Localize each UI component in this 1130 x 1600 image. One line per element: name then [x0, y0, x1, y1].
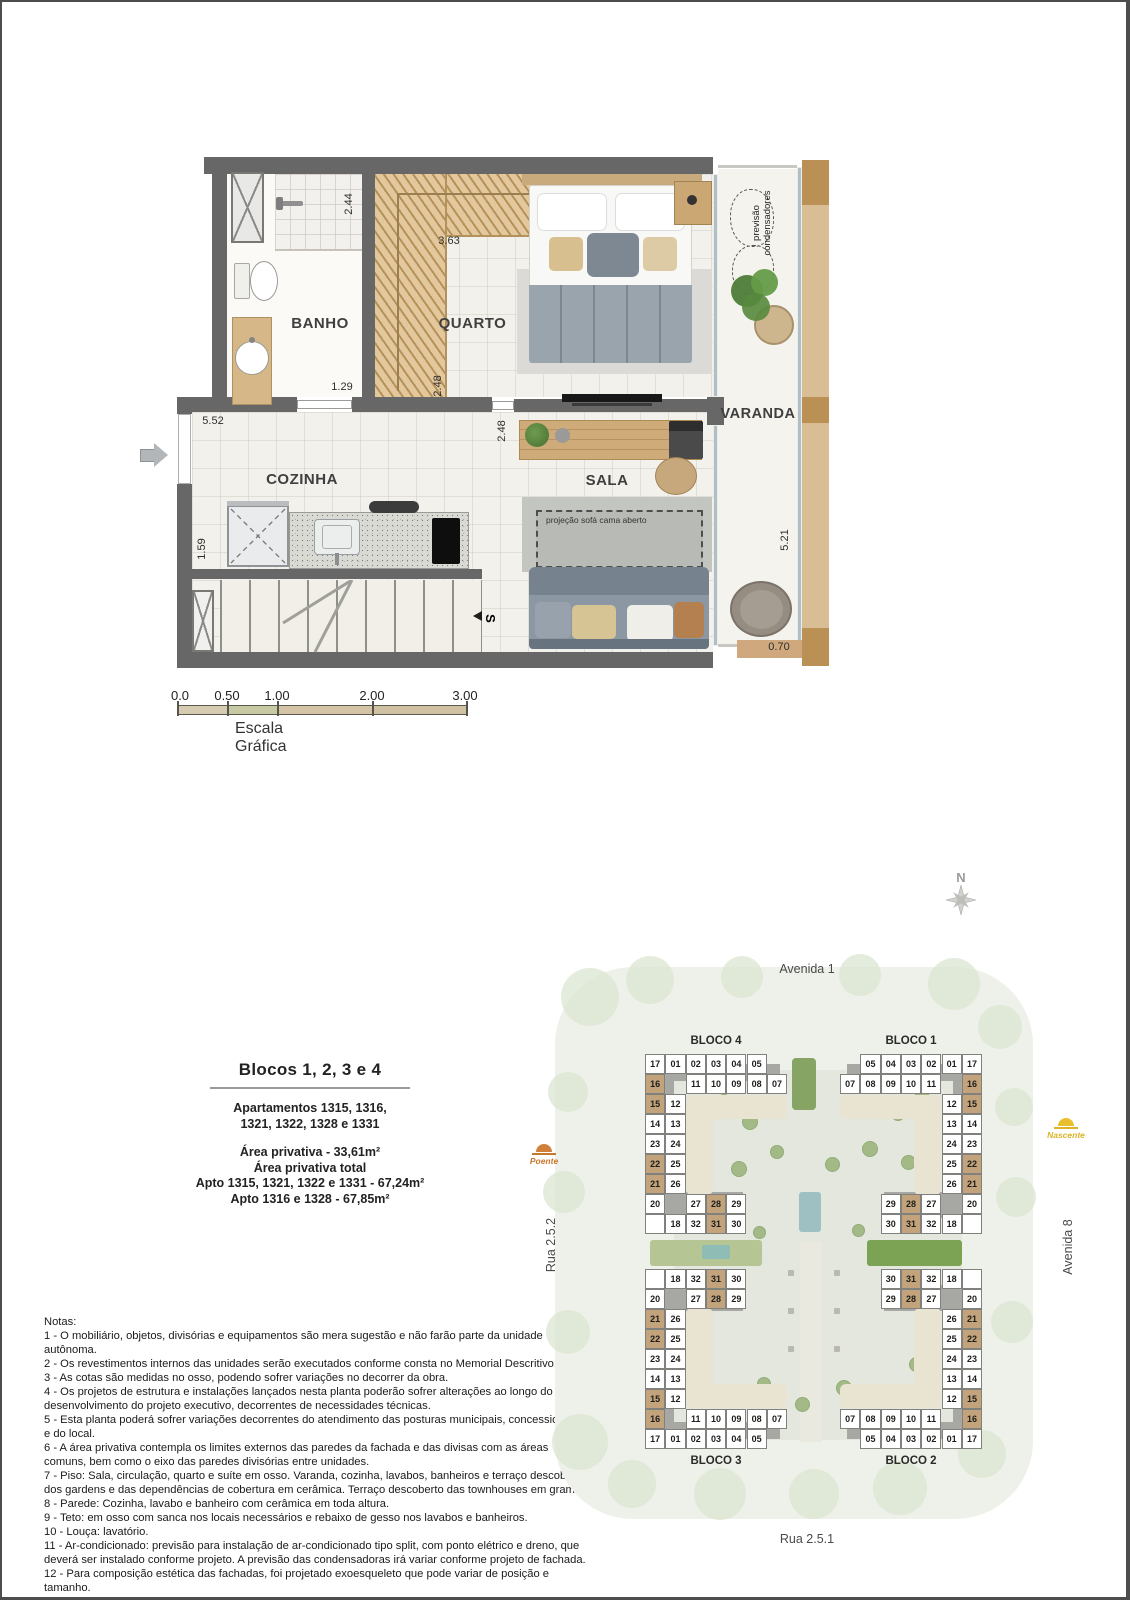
unit-cell: 05 — [747, 1429, 767, 1449]
info-title: Blocos 1, 2, 3 e 4 — [160, 1060, 460, 1080]
tree-icon — [626, 956, 674, 1004]
unit-cell: 29 — [881, 1289, 901, 1309]
sofa-backrest — [529, 567, 709, 597]
info-line: 1321, 1322, 1328 e 1331 — [160, 1117, 460, 1133]
desk-plant-icon — [525, 423, 549, 447]
unit-cell: 11 — [921, 1409, 941, 1429]
table-icon — [788, 1346, 794, 1352]
scale-tick-mark — [466, 701, 468, 716]
unit-cell: 25 — [665, 1154, 685, 1174]
label-quarto: QUARTO — [425, 315, 520, 332]
unit-cell: 28 — [706, 1194, 726, 1214]
scale-tick-label: 0.0 — [171, 688, 189, 703]
scale-tick-mark — [372, 701, 374, 716]
sink-basin-icon — [235, 341, 269, 375]
floor-plan: projeção sofá cama aberto previsão conde… — [157, 157, 829, 669]
scale-seg-2 — [227, 705, 277, 715]
unit-cell: 22 — [962, 1154, 982, 1174]
bloco-label: BLOCO 4 — [645, 1035, 787, 1047]
bed-cushion-tan-left — [549, 237, 583, 271]
unit-cell: 30 — [881, 1269, 901, 1289]
kitchen-faucet-icon — [335, 553, 339, 565]
unit-cell: 08 — [860, 1409, 880, 1429]
stairs-direction: S — [473, 608, 503, 624]
tree-icon — [546, 1310, 590, 1354]
unit-cell: 15 — [962, 1389, 982, 1409]
shower-valve-icon — [276, 197, 283, 210]
deck-strip-5 — [802, 628, 829, 666]
tree-icon — [548, 1072, 588, 1112]
unit-cell: 26 — [665, 1174, 685, 1194]
wall-left-lower-b — [177, 484, 192, 668]
unit-cell: 18 — [942, 1269, 962, 1289]
tree-icon — [995, 1088, 1033, 1126]
tree-icon — [552, 1414, 608, 1470]
street-avenida-1: Avenida 1 — [762, 962, 852, 976]
unit-cell: 15 — [962, 1094, 982, 1114]
unit-cell: 20 — [962, 1289, 982, 1309]
info-line: Apto 1316 e 1328 - 67,85m² — [160, 1192, 460, 1208]
unit-cell: 31 — [901, 1214, 921, 1234]
scale-caption: Escala Gráfica — [235, 720, 287, 756]
unit-cell: 21 — [645, 1174, 665, 1194]
unit-cell: 10 — [706, 1409, 726, 1429]
unit-cell: 01 — [942, 1054, 962, 1074]
deck-strip-2 — [802, 205, 829, 397]
unit-cell: 02 — [686, 1429, 706, 1449]
stairs — [220, 580, 482, 652]
bloco-bloco-3: 1701020304051611100908071512141323242225… — [645, 1269, 787, 1449]
dim-1-59: 1.59 — [196, 534, 208, 564]
unit-cell: 26 — [942, 1309, 962, 1329]
wall-top — [204, 157, 713, 174]
unit-cell: 17 — [645, 1429, 665, 1449]
green-roof-east — [867, 1240, 962, 1266]
sofa-pillow-gray — [535, 602, 571, 638]
unit-cell: 25 — [942, 1154, 962, 1174]
unit-cell: 13 — [665, 1114, 685, 1134]
tree-icon — [789, 1469, 839, 1519]
bed-blanket — [529, 285, 692, 363]
info-line: Apto 1315, 1321, 1322 e 1331 - 67,24m² — [160, 1176, 460, 1192]
unit-cell: 12 — [665, 1389, 685, 1409]
unit-cell: 10 — [901, 1409, 921, 1429]
tree-icon — [694, 1468, 746, 1520]
unit-cell: 13 — [665, 1369, 685, 1389]
note-item: 4 - Os projetos de estrutura e instalaçõ… — [44, 1385, 593, 1413]
sun-poente: Poente — [518, 1144, 570, 1166]
unit-cell: 29 — [881, 1194, 901, 1214]
laptop-icon — [669, 421, 703, 459]
note-item: 2 - Os revestimentos internos das unidad… — [44, 1357, 593, 1371]
unit-cell — [645, 1269, 665, 1289]
unit-cell: 01 — [942, 1429, 962, 1449]
garden-strip — [686, 1095, 713, 1195]
unit-cell: 28 — [901, 1289, 921, 1309]
scale-seg-4 — [372, 705, 467, 715]
unit-cell: 23 — [645, 1134, 665, 1154]
unit-cell: 20 — [645, 1289, 665, 1309]
unit-cell: 04 — [726, 1429, 746, 1449]
unit-cell: 16 — [645, 1409, 665, 1429]
kitchen-appliance-icon — [369, 501, 419, 513]
bed-pillow-left — [537, 193, 607, 231]
unit-cell: 32 — [921, 1214, 941, 1234]
unit-cell: 04 — [881, 1429, 901, 1449]
desk-ornament-icon — [555, 428, 570, 443]
unit-cell: 03 — [706, 1429, 726, 1449]
tree-icon — [928, 958, 980, 1010]
dim-0-70: 0.70 — [762, 641, 796, 653]
unit-cell: 22 — [645, 1329, 665, 1349]
cooktop-icon — [432, 518, 460, 564]
unit-cell: 11 — [686, 1409, 706, 1429]
wall-left-lower-a — [177, 397, 192, 414]
bloco-label: BLOCO 2 — [840, 1455, 982, 1467]
unit-cell — [645, 1214, 665, 1234]
scale-seg-1 — [177, 705, 227, 715]
shaft-box-bottom — [192, 590, 214, 652]
label-varanda: VARANDA — [712, 406, 804, 422]
unit-cell: 08 — [747, 1409, 767, 1429]
sunset-icon — [536, 1144, 552, 1152]
unit-cell: 16 — [962, 1409, 982, 1429]
unit-cell: 32 — [686, 1214, 706, 1234]
desk-chair — [655, 457, 697, 495]
wall-bottom — [177, 652, 713, 668]
sun-nascente: Nascente — [1038, 1118, 1094, 1140]
unit-cell: 24 — [665, 1134, 685, 1154]
unit-cell: 17 — [962, 1429, 982, 1449]
unit-cell: 28 — [706, 1289, 726, 1309]
door-quarto — [492, 401, 514, 410]
unit-cell: 07 — [840, 1409, 860, 1429]
unit-cell: 18 — [942, 1214, 962, 1234]
unit-cell: 17 — [962, 1054, 982, 1074]
fridge — [227, 505, 289, 567]
varanda-chair-cushion — [740, 590, 783, 629]
info-lines: Apartamentos 1315, 1316,1321, 1322, 1328… — [160, 1101, 460, 1207]
deck-strip-4 — [802, 423, 829, 628]
unit-cell: 14 — [962, 1114, 982, 1134]
unit-cell: 30 — [726, 1269, 746, 1289]
note-item: 12 - Para composição estética das fachad… — [44, 1567, 593, 1595]
unit-cell: 14 — [962, 1369, 982, 1389]
tree-icon — [795, 1397, 810, 1412]
unit-cell: 07 — [840, 1074, 860, 1094]
stairs-letter: S — [483, 614, 498, 623]
kitchen-sink-basin — [322, 525, 352, 549]
poente-label: Poente — [518, 1156, 570, 1166]
unit-cell: 24 — [942, 1349, 962, 1369]
unit-cell: 09 — [881, 1074, 901, 1094]
toilet-tank-icon — [234, 263, 250, 299]
note-item: 13 - Será entregue previsão para instala… — [44, 1595, 593, 1600]
label-banho: BANHO — [275, 315, 365, 332]
unit-cell: 24 — [942, 1134, 962, 1154]
tree-icon — [721, 956, 763, 998]
tree-icon — [978, 1005, 1022, 1049]
closet-rail-v — [397, 193, 399, 391]
unit-cell: 31 — [901, 1269, 921, 1289]
unit-cell: 15 — [645, 1389, 665, 1409]
unit-cell: 15 — [645, 1094, 665, 1114]
unit-cell: 01 — [665, 1054, 685, 1074]
courtyard-pool — [799, 1192, 821, 1232]
unit-cell: 02 — [921, 1054, 941, 1074]
unit-cell: 18 — [665, 1214, 685, 1234]
unit-cell: 32 — [921, 1269, 941, 1289]
unit-cell: 30 — [726, 1214, 746, 1234]
shaft-box-top — [231, 172, 264, 243]
notes-block: Notas: 1 - O mobiliário, objetos, divisó… — [44, 1315, 593, 1600]
unit-cell: 08 — [860, 1074, 880, 1094]
note-item: 3 - As cotas são medidas no osso, podend… — [44, 1371, 593, 1385]
compass-n-label: N — [938, 870, 984, 885]
unit-cell: 30 — [881, 1214, 901, 1234]
page: projeção sofá cama aberto previsão conde… — [0, 0, 1130, 1600]
unit-cell: 03 — [706, 1054, 726, 1074]
sofa-bed-projection: projeção sofá cama aberto — [536, 510, 703, 568]
dim-2-48-a: 2.48 — [432, 371, 444, 401]
unit-cell: 24 — [665, 1349, 685, 1369]
unit-cell: 03 — [901, 1429, 921, 1449]
unit-cell: 29 — [726, 1289, 746, 1309]
note-item: 6 - A área privativa contempla os limite… — [44, 1441, 593, 1469]
door-banho — [297, 400, 352, 409]
bed-cushion-gray — [587, 233, 639, 277]
unit-cell: 14 — [645, 1369, 665, 1389]
sunset-horizon — [532, 1153, 556, 1155]
tree-icon — [873, 1461, 927, 1515]
compass-rose-icon — [946, 885, 976, 915]
unit-cell: 10 — [706, 1074, 726, 1094]
sofa-pillow-white — [627, 605, 673, 641]
dim-2-48-b: 2.48 — [496, 416, 508, 446]
unit-cell: 31 — [706, 1214, 726, 1234]
unit-cell — [962, 1214, 982, 1234]
wall-left-upper — [212, 157, 227, 397]
unit-cell: 12 — [942, 1094, 962, 1114]
deck-strip-3 — [802, 397, 829, 423]
unit-cell: 31 — [706, 1269, 726, 1289]
note-item: 7 - Piso: Sala, circulação, quarto e suí… — [44, 1469, 593, 1497]
unit-cell: 28 — [901, 1194, 921, 1214]
sofa-pillow-tan — [572, 605, 616, 639]
info-line: Área privativa - 33,61m² — [160, 1145, 460, 1161]
unit-cell: 21 — [962, 1174, 982, 1194]
closet-side — [375, 174, 447, 397]
deck-strip-1 — [802, 160, 829, 205]
plant-leaf-2 — [751, 269, 778, 296]
unit-cell: 21 — [645, 1309, 665, 1329]
tree-icon — [561, 968, 619, 1026]
note-item: 9 - Teto: em osso com sanca nos locais n… — [44, 1511, 593, 1525]
wall-mid-2 — [352, 397, 492, 412]
garden-strip — [686, 1308, 713, 1408]
unit-cell: 23 — [962, 1134, 982, 1154]
scale-tick-mark — [177, 701, 179, 716]
unit-cell: 18 — [665, 1269, 685, 1289]
unit-cell: 26 — [665, 1309, 685, 1329]
glass-door-sala — [713, 425, 718, 646]
unit-cell: 05 — [747, 1054, 767, 1074]
unit-cell: 21 — [962, 1309, 982, 1329]
unit-cell: 05 — [860, 1429, 880, 1449]
street-rua-2-5-1: Rua 2.5.1 — [757, 1532, 857, 1546]
unit-cell: 08 — [747, 1074, 767, 1094]
unit-cell: 02 — [686, 1054, 706, 1074]
table-icon — [788, 1308, 794, 1314]
tree-icon — [608, 1460, 656, 1508]
garden-strip — [914, 1308, 941, 1408]
street-rua-2-5-2: Rua 2.5.2 — [544, 1210, 558, 1280]
scale-tick-label: 3.00 — [452, 688, 477, 703]
sofa-projection-label: projeção sofá cama aberto — [538, 512, 701, 525]
entry-door — [178, 414, 191, 484]
sofa-base — [529, 639, 709, 649]
tree-icon — [825, 1157, 840, 1172]
unit-cell: 07 — [767, 1409, 787, 1429]
unit-cell: 04 — [881, 1054, 901, 1074]
bedroom-lamp-icon — [687, 195, 697, 205]
dim-5-52: 5.52 — [195, 415, 231, 427]
unit-cell: 01 — [665, 1429, 685, 1449]
scale-tick-mark — [227, 701, 229, 716]
unit-cell: 29 — [726, 1194, 746, 1214]
notes-title: Notas: — [44, 1315, 593, 1329]
info-line: Apartamentos 1315, 1316, — [160, 1101, 460, 1117]
notes-items: 1 - O mobiliário, objetos, divisórias e … — [44, 1329, 593, 1600]
unit-cell — [962, 1269, 982, 1289]
sofa-pillow-brown — [674, 602, 704, 638]
table-icon — [788, 1270, 794, 1276]
bloco-label: BLOCO 1 — [840, 1035, 982, 1047]
unit-cell: 25 — [665, 1329, 685, 1349]
dim-1-29: 1.29 — [325, 381, 359, 393]
dim-2-44: 2.44 — [343, 189, 355, 219]
tv-base — [572, 403, 652, 406]
compass: N — [938, 870, 984, 920]
street-avenida-8: Avenida 8 — [1061, 1211, 1075, 1283]
scale-tick-mark — [277, 701, 279, 716]
garden-strip — [914, 1095, 941, 1195]
fridge-handle — [227, 501, 289, 506]
unit-cell: 26 — [942, 1174, 962, 1194]
bloco-bloco-1: 1701020304051611100908071512141323242225… — [840, 1054, 982, 1234]
unit-cell: 20 — [962, 1194, 982, 1214]
wall-banho-quarto — [362, 174, 375, 397]
unit-cell: 16 — [645, 1074, 665, 1094]
plant-leaf-3 — [742, 293, 770, 321]
unit-cell: 11 — [921, 1074, 941, 1094]
unit-cell: 09 — [881, 1409, 901, 1429]
unit-cell: 27 — [686, 1289, 706, 1309]
unit-cell: 16 — [962, 1074, 982, 1094]
unit-cell: 12 — [665, 1094, 685, 1114]
unit-cell: 20 — [645, 1194, 665, 1214]
unit-cell: 04 — [726, 1054, 746, 1074]
bloco-bloco-2: 1701020304051611100908071512141323242225… — [840, 1269, 982, 1449]
courtyard-green-north — [792, 1058, 816, 1110]
unit-cell: 17 — [645, 1054, 665, 1074]
scale-seg-3 — [277, 705, 372, 715]
toilet-bowl-icon — [250, 261, 278, 301]
note-item: 8 - Parede: Cozinha, lavabo e banheiro c… — [44, 1497, 593, 1511]
tv-icon — [562, 394, 662, 402]
label-cozinha: COZINHA — [252, 471, 352, 488]
unit-cell: 27 — [921, 1194, 941, 1214]
info-divider — [210, 1087, 410, 1089]
stairs-arrow-icon — [473, 611, 482, 621]
entry-arrow-icon — [154, 443, 168, 467]
unit-cell: 13 — [942, 1114, 962, 1134]
unit-cell: 09 — [726, 1074, 746, 1094]
courtyard-walkway — [800, 1242, 822, 1442]
bloco-bloco-4: 1701020304051611100908071512141323242225… — [645, 1054, 787, 1234]
bed-cushion-tan-right — [643, 237, 677, 271]
unit-cell: 11 — [686, 1074, 706, 1094]
dim-5-21: 5.21 — [779, 525, 791, 555]
unit-cell: 25 — [942, 1329, 962, 1349]
unit-cell: 23 — [645, 1349, 665, 1369]
tree-icon — [996, 1177, 1036, 1217]
unit-cell: 13 — [942, 1369, 962, 1389]
unit-cell: 12 — [942, 1389, 962, 1409]
note-item: 5 - Esta planta poderá sofrer variações … — [44, 1413, 593, 1441]
unit-cell: 23 — [962, 1349, 982, 1369]
bloco-label: BLOCO 3 — [645, 1455, 787, 1467]
unit-cell: 27 — [921, 1289, 941, 1309]
note-item: 11 - Ar-condicionado: previsão para inst… — [44, 1539, 593, 1567]
note-item: 10 - Louça: lavatório. — [44, 1525, 593, 1539]
tree-icon — [543, 1171, 585, 1213]
unit-cell: 03 — [901, 1054, 921, 1074]
entry-arrow-tail — [140, 449, 155, 462]
garden-pool-west — [702, 1245, 730, 1259]
label-sala: SALA — [562, 472, 652, 489]
unit-cell: 02 — [921, 1429, 941, 1449]
unit-info: Blocos 1, 2, 3 e 4 Apartamentos 1315, 13… — [160, 1060, 460, 1207]
note-item: 1 - O mobiliário, objetos, divisórias e … — [44, 1329, 593, 1357]
unit-cell: 07 — [767, 1074, 787, 1094]
unit-cell: 09 — [726, 1409, 746, 1429]
sink-faucet-icon — [249, 337, 255, 343]
unit-cell: 05 — [860, 1054, 880, 1074]
unit-cell: 22 — [645, 1154, 665, 1174]
dim-3-63: 3.63 — [432, 235, 466, 247]
tree-icon — [991, 1301, 1033, 1343]
nascente-label: Nascente — [1038, 1130, 1094, 1140]
glass-door-quarto — [713, 174, 718, 397]
unit-cell: 10 — [901, 1074, 921, 1094]
unit-cell: 27 — [686, 1194, 706, 1214]
info-line: Área privativa total — [160, 1161, 460, 1177]
wall-stairs-top — [192, 569, 482, 579]
unit-cell: 22 — [962, 1329, 982, 1349]
sunrise-icon — [1058, 1118, 1074, 1126]
unit-cell: 14 — [645, 1114, 665, 1134]
unit-cell: 32 — [686, 1269, 706, 1289]
sunrise-horizon — [1054, 1127, 1078, 1129]
